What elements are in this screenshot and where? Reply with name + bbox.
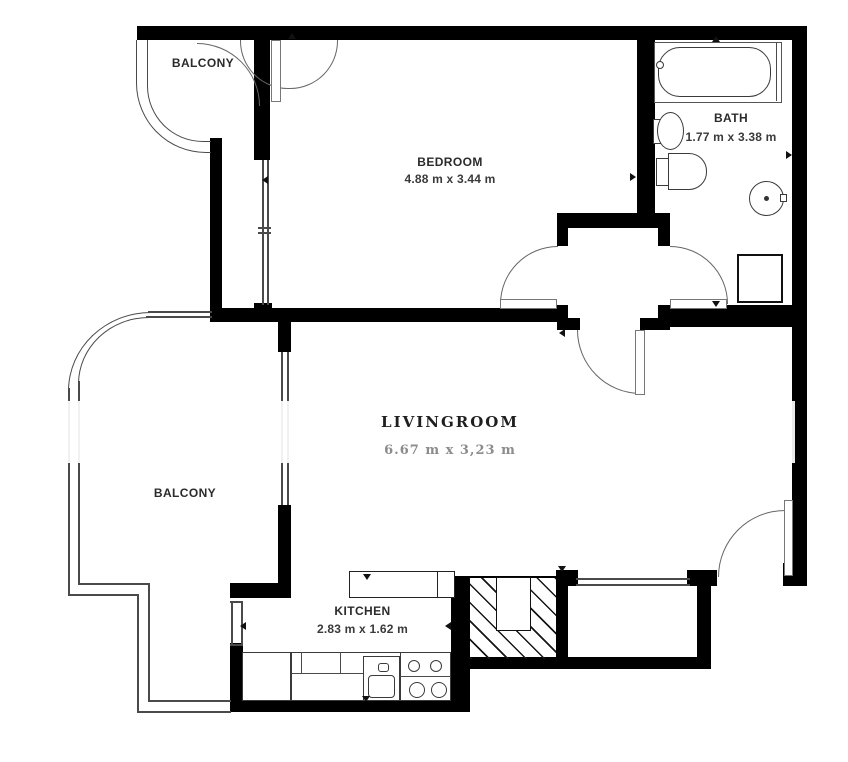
shower-tray-icon: [737, 254, 783, 303]
wall-livingroom-left: [278, 505, 291, 585]
wall-lower-section-right: [697, 576, 711, 669]
balcony-left-railing: [137, 594, 139, 712]
wall-shaft-right: [556, 576, 568, 669]
marker-arrow-icon: [559, 329, 565, 337]
room-dim-kitchen: 2.83 m x 1.62 m: [295, 622, 430, 636]
room-dim-bedroom: 4.88 m x 3.44 m: [380, 172, 520, 186]
marker-arrow-icon: [363, 574, 371, 580]
marker-arrow-icon: [712, 36, 720, 42]
stove-line: [400, 676, 451, 677]
kitchen-window-cap: [230, 644, 243, 646]
wall-hall-top: [557, 213, 670, 228]
wall-kitchen-top-left: [230, 583, 291, 598]
wall-right: [792, 26, 807, 576]
balcony-left-railing: [148, 583, 150, 701]
wall-bedroom-left: [210, 138, 222, 313]
wall-livingroom-left-notch: [278, 322, 291, 352]
marker-arrow-icon: [630, 173, 636, 181]
marker-arrow-icon: [786, 151, 792, 159]
bedroom-window-tick: [258, 227, 271, 229]
floor-plan: BALCONY BEDROOM 4.88 m x 3.44 m BATH 1.7…: [0, 0, 848, 762]
livingroom-bottom-window: [576, 584, 690, 586]
wall-hall-bottom-right: [640, 318, 670, 330]
marker-arrow-icon: [288, 33, 296, 39]
livingroom-terrace-door-leaf: [784, 500, 793, 576]
burner-icon: [430, 660, 442, 672]
burner-icon: [409, 682, 425, 698]
marker-arrow-icon: [362, 696, 370, 702]
kitchen-faucet-icon: [378, 663, 389, 672]
hall-livingroom-door-leaf: [635, 330, 645, 395]
room-label-balcony-top: BALCONY: [153, 56, 253, 70]
marker-arrow-icon: [240, 622, 246, 630]
balcony-door-leaf: [271, 40, 281, 102]
room-label-livingroom: LIVINGROOM: [370, 413, 530, 431]
bedroom-door-leaf: [500, 299, 557, 309]
room-dim-livingroom: 6.67 m x 3,23 m: [370, 443, 530, 458]
balcony-left-railing: [68, 594, 138, 596]
kitchen-window-cap: [230, 601, 243, 603]
kitchen-sink-icon: [368, 675, 395, 698]
room-label-bedroom: BEDROOM: [380, 155, 520, 169]
kitchen-window: [231, 602, 233, 645]
bedroom-window-tick: [258, 232, 271, 234]
wall-hall-right-upper: [658, 213, 670, 246]
room-label-kitchen: KITCHEN: [300, 604, 425, 618]
bedroom-door-arc: [500, 246, 558, 304]
kitchen-counter-line: [301, 652, 302, 673]
livingroom-terrace-door-arc: [718, 510, 785, 577]
bath-door-arc: [670, 246, 728, 304]
wall-top: [137, 26, 806, 40]
toilet-icon: [668, 153, 707, 190]
room-label-balcony-left: BALCONY: [135, 486, 235, 500]
wall-livingroom-bottom-seg: [687, 570, 717, 586]
utility-shaft-duct: [496, 577, 531, 631]
bathtub-enclosure-line: [776, 42, 777, 101]
hall-livingroom-door-arc: [577, 330, 641, 394]
bathtub-icon: [658, 47, 771, 97]
balcony-left-railing: [78, 583, 149, 585]
balcony-left-railing: [146, 316, 212, 318]
balcony-left-railing: [148, 700, 231, 702]
bath-faucet-icon: [656, 61, 664, 69]
burner-icon: [431, 682, 447, 698]
balcony-left-railing: [137, 711, 231, 713]
washing-machine-dot: [764, 196, 769, 201]
wall-hall-left-upper: [557, 213, 568, 246]
marker-arrow-icon: [262, 176, 268, 184]
marker-arrow-icon: [445, 622, 451, 630]
kitchen-counter-line: [340, 652, 341, 673]
burner-icon: [408, 660, 420, 672]
wall-window-stub-left: [556, 570, 578, 586]
kitchen-counter-island-divider: [437, 571, 438, 598]
livingroom-bottom-window: [576, 578, 690, 580]
marker-arrow-icon: [712, 301, 720, 307]
wall-bedroom-livingroom-divider: [210, 308, 560, 322]
marker-arrow-icon: [558, 566, 566, 572]
balcony-left-railing: [148, 311, 212, 313]
balcony-left-railing-inner-curve: [78, 317, 149, 384]
washing-machine-latch: [780, 194, 787, 202]
kitchen-cabinet: [242, 652, 291, 701]
wall-kitchen-bottom: [230, 700, 466, 712]
room-label-bath: BATH: [671, 111, 791, 125]
room-dim-bath: 1.77 m x 3.38 m: [661, 130, 801, 144]
